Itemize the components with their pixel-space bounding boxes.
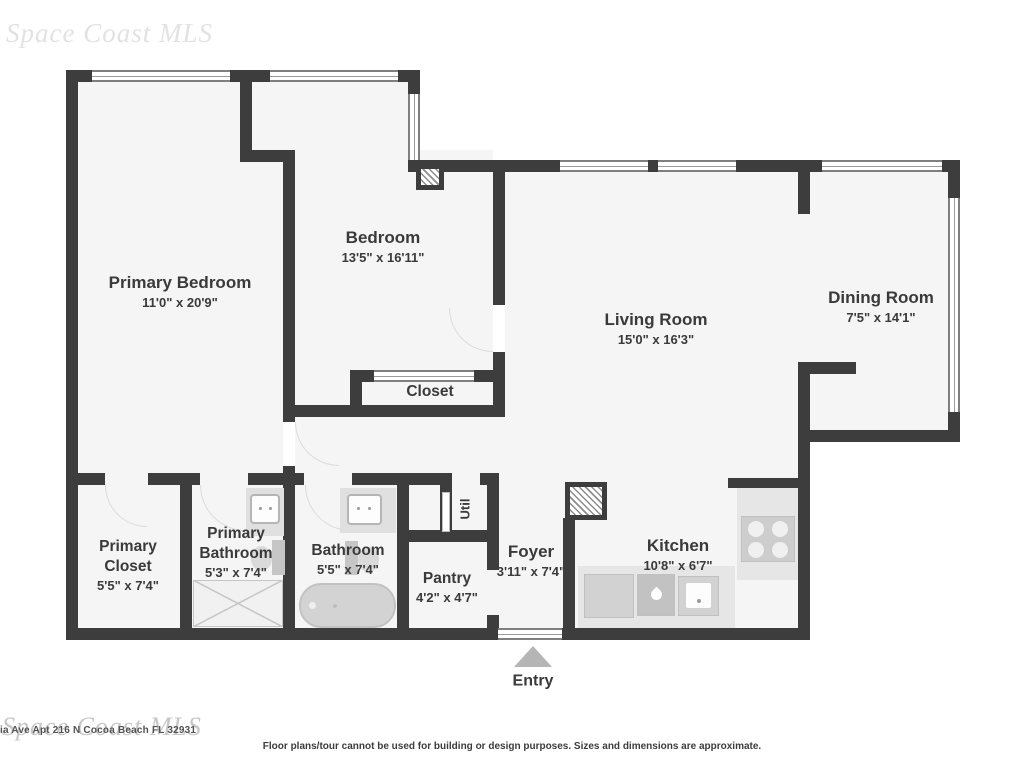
- room-label-primary-closet: Primary Closet 5'5" x 7'4": [86, 537, 170, 595]
- wall: [148, 473, 200, 485]
- bathtub-icon: [299, 583, 396, 628]
- room-label-living-room: Living Room 15'0" x 16'3": [605, 309, 708, 349]
- wall: [942, 160, 960, 172]
- window: [92, 70, 230, 82]
- room-label-primary-bedroom: Primary Bedroom 11'0" x 20'9": [109, 272, 252, 312]
- watermark-top: Space Coast MLS: [6, 18, 213, 49]
- burner: [748, 542, 764, 558]
- floor-plan: Space Coast MLS Space Coast MLS: [0, 0, 1024, 768]
- room-dims: 5'5" x 7'4": [311, 562, 384, 579]
- wall: [810, 430, 960, 442]
- wall: [66, 628, 498, 640]
- room-label-dining-room: Dining Room 7'5" x 14'1": [828, 287, 934, 327]
- floor: [295, 417, 798, 473]
- wall: [352, 473, 452, 485]
- dishwasher-icon: [678, 576, 719, 616]
- room-name: Primary Closet: [86, 537, 170, 577]
- fridge-icon: [584, 574, 634, 618]
- wall: [295, 405, 505, 417]
- room-name: Dining Room: [828, 287, 934, 309]
- window: [948, 198, 960, 412]
- stove-burners-icon: [741, 516, 795, 562]
- wall: [648, 160, 658, 172]
- room-label-primary-bathroom: Primary Bathroom 5'3" x 7'4": [182, 524, 290, 582]
- room-name: Bathroom: [311, 541, 384, 561]
- room-dims: 3'11" x 7'4": [497, 564, 565, 581]
- tub-drain: [333, 604, 337, 608]
- room-dims: 15'0" x 16'3": [605, 332, 708, 349]
- wall: [248, 473, 304, 485]
- faucet-dot: [259, 507, 262, 510]
- listing-address: ia Ave Apt 216 N Cocoa Beach FL 32931: [0, 725, 196, 736]
- burner: [772, 542, 788, 558]
- wall: [493, 172, 505, 305]
- wall: [397, 485, 409, 628]
- room-dims: 7'5" x 14'1": [828, 310, 934, 327]
- wall: [66, 473, 105, 485]
- room-label-util: Util: [458, 499, 475, 520]
- room-name: Primary Bathroom: [182, 524, 290, 564]
- window: [270, 70, 398, 82]
- kitchen-sink-icon: [637, 574, 675, 616]
- burner: [748, 521, 764, 537]
- vanity-sink-icon: [347, 494, 382, 525]
- vent-hatch-icon: [416, 164, 444, 190]
- wall: [230, 70, 270, 82]
- room-name: Foyer: [497, 541, 565, 563]
- water-drop-icon: [649, 587, 665, 603]
- faucet-dot: [269, 507, 272, 510]
- room-name: Util: [458, 499, 475, 520]
- faucet-dot: [357, 507, 360, 510]
- room-dims: 10'8" x 6'7": [643, 558, 712, 575]
- column-hatch-icon: [565, 482, 607, 520]
- room-label-kitchen: Kitchen 10'8" x 6'7": [643, 535, 712, 575]
- floor: [798, 214, 810, 362]
- wall: [487, 615, 499, 628]
- wall: [736, 160, 822, 172]
- room-name: Bedroom: [342, 227, 425, 249]
- wall: [798, 172, 810, 214]
- room-name: Entry: [513, 672, 554, 693]
- room-label-foyer: Foyer 3'11" x 7'4": [497, 541, 565, 581]
- entry-arrow-icon: [514, 646, 552, 667]
- room-name: Pantry: [416, 569, 478, 589]
- wall: [283, 466, 295, 473]
- wall: [66, 70, 78, 640]
- window: [822, 160, 942, 172]
- wall: [562, 628, 810, 640]
- wall: [948, 172, 960, 198]
- floor: [78, 162, 283, 473]
- burner: [772, 521, 788, 537]
- room-name: Living Room: [605, 309, 708, 331]
- window: [408, 94, 420, 162]
- room-label-bathroom: Bathroom 5'5" x 7'4": [311, 541, 384, 579]
- room-name: Kitchen: [643, 535, 712, 557]
- room-dims: 11'0" x 20'9": [109, 295, 252, 312]
- room-dims: 4'2" x 4'7": [416, 590, 478, 607]
- window: [658, 160, 736, 172]
- dishwasher-door: [686, 583, 711, 608]
- room-name: Closet: [406, 382, 453, 402]
- entry-label: Entry: [513, 672, 554, 693]
- room-label-bedroom: Bedroom 13'5" x 16'11": [342, 227, 425, 267]
- room-dims: 13'5" x 16'11": [342, 250, 425, 267]
- wall: [474, 370, 505, 382]
- disclaimer-text: Floor plans/tour cannot be used for buil…: [263, 741, 761, 752]
- faucet-dot: [368, 507, 371, 510]
- room-label-pantry: Pantry 4'2" x 4'7": [416, 569, 478, 607]
- wall: [798, 362, 810, 640]
- wall: [810, 362, 856, 374]
- dishwasher-knob: [697, 599, 701, 603]
- room-name: Primary Bedroom: [109, 272, 252, 294]
- room-dims: 5'3" x 7'4": [182, 565, 290, 582]
- wall: [480, 473, 499, 485]
- wall: [408, 82, 420, 94]
- room-label-closet: Closet: [406, 382, 453, 402]
- closet-sliding-door: [374, 370, 474, 382]
- room-dims: 5'5" x 7'4": [86, 578, 170, 595]
- wall: [728, 478, 810, 488]
- vanity-sink-icon: [250, 494, 280, 524]
- entry-door-threshold: [498, 628, 562, 640]
- wall: [283, 162, 295, 422]
- shower-icon: [193, 580, 283, 627]
- wall: [398, 70, 420, 82]
- wall: [240, 150, 295, 162]
- util-door: [442, 492, 450, 532]
- window: [560, 160, 648, 172]
- tub-faucet: [309, 602, 316, 609]
